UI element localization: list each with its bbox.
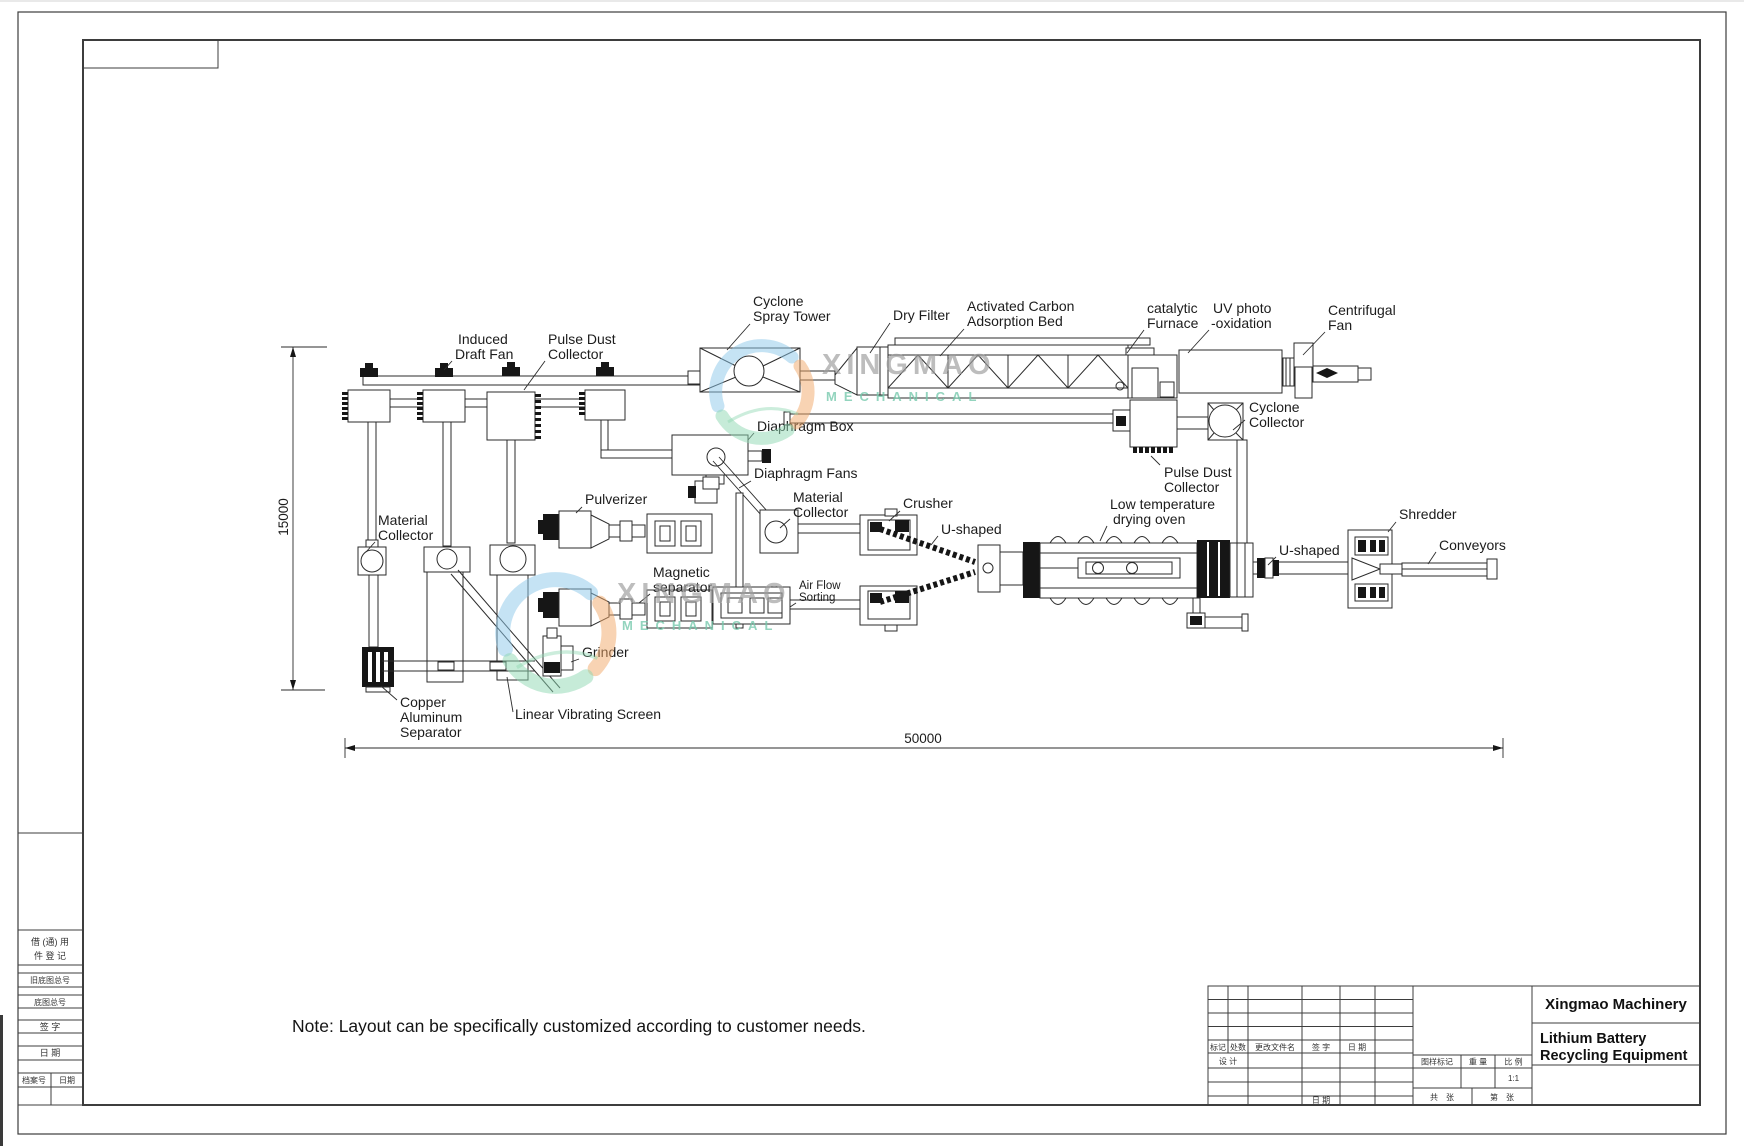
corner-box xyxy=(83,40,218,68)
catalytic-furnace-label2: Furnace xyxy=(1147,315,1199,331)
company-name: Xingmao Machinery xyxy=(1545,996,1687,1013)
left-edge-strip xyxy=(0,1015,3,1146)
rev-header-sign: 签 字 xyxy=(1312,1042,1330,1052)
material-collector-mid-label2: Collector xyxy=(793,504,849,520)
uv-photo-oxidation-label: UV photo xyxy=(1213,300,1272,316)
material-collector-left-label2: Collector xyxy=(378,527,434,543)
horizontal-dimension: 50000 xyxy=(345,731,1503,758)
title-block-text: 标记 处数 更改文件名 签 字 日 期 设 计 日 期 图样标记 重 量 比 例… xyxy=(1210,996,1688,1105)
material-collector-left-label: Material xyxy=(378,512,428,528)
u-shaped-2-label: U-shaped xyxy=(1279,542,1340,558)
air-flow-sorting-label: Air Flow xyxy=(799,580,841,592)
watermark-brand-text-2: XINGMAO xyxy=(617,578,791,610)
drawing-page: 15000 50000 Cyclone Spray Tower Dry Filt… xyxy=(0,0,1744,1146)
margin-file-date-label: 日期 xyxy=(59,1076,75,1085)
drying-oven-equipment xyxy=(1023,537,1253,632)
margin-reg-label: 借 (通) 用 xyxy=(31,936,69,947)
copper-aluminum-separator-label: Copper xyxy=(400,694,446,710)
rev-header-mark: 标记 xyxy=(1210,1042,1226,1052)
conveyors-label: Conveyors xyxy=(1439,537,1506,553)
catalytic-furnace-label: catalytic xyxy=(1147,300,1198,316)
product-title-line2: Recycling Equipment xyxy=(1540,1048,1688,1064)
induced-draft-fan-label2: Draft Fan xyxy=(455,346,513,362)
margin-base-no-label: 底图总号 xyxy=(34,997,66,1007)
dry-filter-label: Dry Filter xyxy=(893,307,950,323)
layout-drawing: 15000 50000 Cyclone Spray Tower Dry Filt… xyxy=(0,0,1744,1146)
watermark-sub-text-2: MECHANICAL xyxy=(622,618,779,633)
rev-header-filename: 更改文件名 xyxy=(1255,1042,1295,1052)
air-flow-sorting-label2: Sorting xyxy=(799,592,835,604)
pulse-dust-collector-2-label: Pulse Dust xyxy=(1164,464,1232,480)
activated-carbon-label2: Adsorption Bed xyxy=(967,313,1063,329)
induced-draft-fan-label: Induced xyxy=(458,331,508,347)
copper-aluminum-separator-label3: Separator xyxy=(400,724,462,740)
centrifugal-fan-label: Centrifugal xyxy=(1328,302,1396,318)
linear-vibrating-screen-label: Linear Vibrating Screen xyxy=(515,706,661,722)
activated-carbon-label: Activated Carbon xyxy=(967,298,1074,314)
margin-date-label: 日 期 xyxy=(40,1048,61,1058)
pulse-dust-collector-top-label2: Collector xyxy=(548,346,604,362)
material-collector-mid-label: Material xyxy=(793,489,843,505)
crusher-label: Crusher xyxy=(903,495,953,511)
scale-value: 1:1 xyxy=(1508,1074,1520,1083)
cyclone-collector-label: Cyclone xyxy=(1249,399,1300,415)
date-label: 日 期 xyxy=(1312,1096,1330,1105)
crusher-equipment xyxy=(860,509,917,631)
centrifugal-fan-equipment xyxy=(1294,343,1371,398)
pulverizer-label: Pulverizer xyxy=(585,491,648,507)
margin-old-base-no-label: 旧底图总号 xyxy=(30,975,70,985)
diaphragm-fans-label: Diaphragm Fans xyxy=(754,465,858,481)
shredder-label: Shredder xyxy=(1399,506,1457,522)
cyclone-collector-label2: Collector xyxy=(1249,414,1305,430)
scale-header: 比 例 xyxy=(1504,1057,1522,1067)
margin-sign-label: 签 字 xyxy=(40,1021,61,1032)
design-label: 设 计 xyxy=(1219,1056,1237,1066)
dimension-50000: 50000 xyxy=(904,731,942,746)
uv-photo-oxidation-label2: -oxidation xyxy=(1211,315,1272,331)
rev-header-count: 处数 xyxy=(1230,1042,1246,1052)
watermark-brand-text: XINGMAO xyxy=(822,349,996,381)
sheet-no-label: 第 张 xyxy=(1490,1092,1514,1102)
mark-header: 图样标记 xyxy=(1421,1057,1453,1067)
weight-header: 重 量 xyxy=(1469,1057,1487,1067)
pulse-dust-collector-top-label: Pulse Dust xyxy=(548,331,616,347)
margin-column xyxy=(18,833,83,1105)
pulverizer-equipment xyxy=(538,511,712,553)
catalytic-furnace-equipment xyxy=(1126,348,1177,398)
margin-file-no-label: 档案号 xyxy=(22,1075,46,1085)
margin-reg-label2: 件 登 记 xyxy=(34,950,66,961)
copper-aluminum-separator-label2: Aluminum xyxy=(400,709,462,725)
pulse-dust-collector-2-label2: Collector xyxy=(1164,479,1220,495)
conveyors-equipment xyxy=(1402,559,1497,579)
drying-oven-label: Low temperature xyxy=(1110,496,1215,512)
cyclone-spray-tower-label2: Spray Tower xyxy=(753,308,831,324)
watermark-sub-text: MECHANICAL xyxy=(826,389,983,404)
sheets-total-label: 共 张 xyxy=(1430,1093,1454,1102)
margin-column-labels: 借 (通) 用 件 登 记 旧底图总号 底图总号 签 字 日 期 档案号 日期 xyxy=(22,936,75,1085)
vertical-dimension: 15000 xyxy=(276,347,327,690)
centrifugal-fan-label2: Fan xyxy=(1328,317,1352,333)
drying-oven-label2: drying oven xyxy=(1113,511,1185,527)
uv-photo-oxidation-equipment xyxy=(1179,350,1294,393)
product-title-line1: Lithium Battery xyxy=(1540,1031,1646,1047)
customization-note: Note: Layout can be specifically customi… xyxy=(292,1016,866,1036)
u-shaped-1-label: U-shaped xyxy=(941,521,1002,537)
dimension-15000: 15000 xyxy=(276,498,291,536)
rev-header-date: 日 期 xyxy=(1348,1043,1366,1052)
cyclone-spray-tower-label: Cyclone xyxy=(753,293,804,309)
top-edge-line xyxy=(0,0,1744,2)
copper-aluminum-separator-equipment xyxy=(362,647,394,692)
